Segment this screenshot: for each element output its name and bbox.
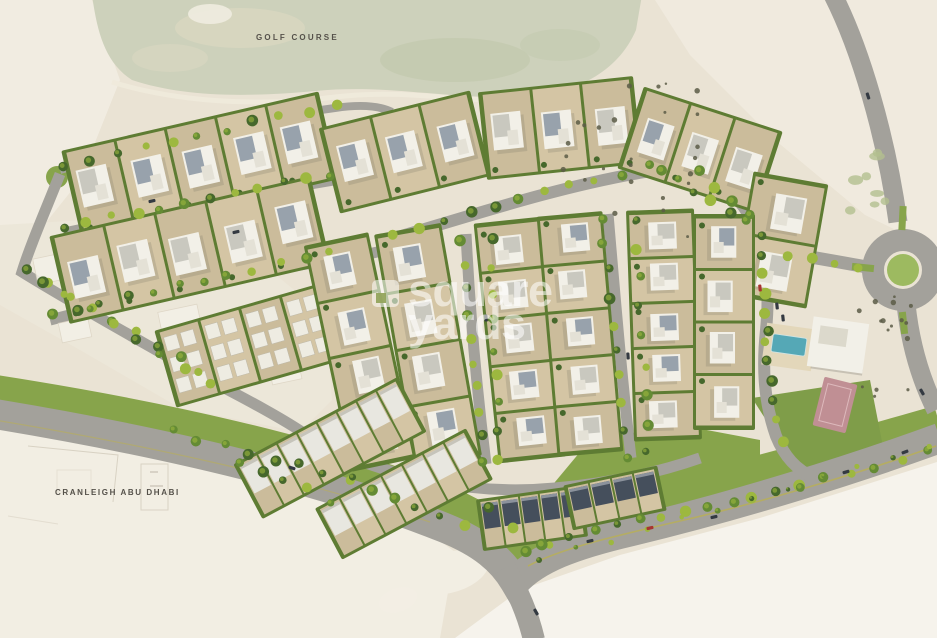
shrub [583,178,587,182]
shrub [597,125,602,130]
shrub [686,235,689,238]
shrub [861,385,864,388]
shrub [905,336,910,341]
grass-tuft [848,175,863,185]
shrub [602,167,605,170]
shrub [561,167,566,172]
shrub [874,388,878,392]
shrub [906,388,909,391]
squareyards-wordmark: square yards [408,274,553,340]
grass-tuft [870,201,880,207]
grass-tuft [873,149,882,157]
shrub [566,141,571,146]
shrub [629,163,633,167]
shrub [629,179,634,184]
shrub [693,156,697,160]
shrub [688,171,693,176]
shrub [564,154,568,158]
masterplan-map: GOLF COURSE CRANLEIGH ABU DHABI square y… [0,0,937,638]
shrub [893,295,896,298]
shrub [873,395,876,398]
grass-tuft [862,172,871,180]
shrub [873,299,878,304]
grass-tuft [870,190,884,197]
squareyards-logo-icon [372,280,399,307]
shrub [891,300,896,305]
shrub [909,304,913,308]
shrub [904,321,908,325]
shrub [630,157,633,160]
shrub [582,123,586,127]
shrub [576,120,581,125]
shrub [696,112,700,116]
squareyards-watermark: square yards [372,274,553,340]
car [626,352,630,359]
villa-block [693,214,755,430]
shrub [881,318,886,323]
shrub [612,117,618,123]
shrub [612,211,617,216]
shrub [687,182,690,185]
grass-tuft [845,206,855,214]
shrub [887,328,890,331]
shrub [661,209,665,213]
shrub [890,325,893,328]
school-label: CRANLEIGH ABU DHABI [55,488,180,497]
shrub [627,83,632,88]
shrub [656,84,660,88]
grass-tuft [881,197,890,205]
shrub [661,196,665,200]
shrub [694,88,699,93]
shrub [695,145,700,150]
golf-course-label: GOLF COURSE [256,33,339,42]
shrub [665,82,667,84]
villa-block [478,76,642,180]
villa-block [626,208,702,441]
shrub [857,308,862,313]
shrub [899,318,903,322]
shrub [663,111,666,114]
